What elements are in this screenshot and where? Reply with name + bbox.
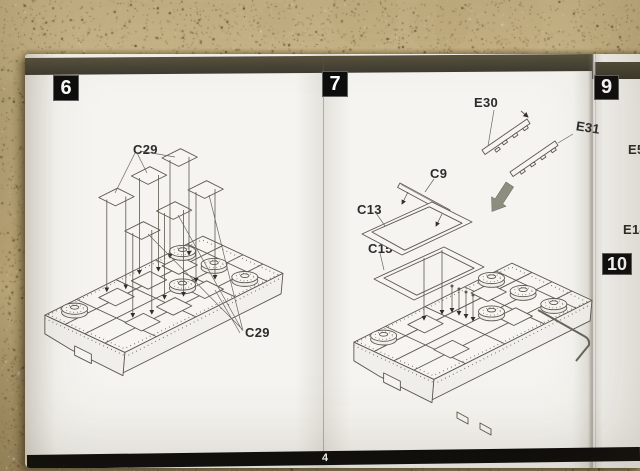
bottom-brackets	[457, 412, 491, 435]
next-page-diagram-fragment	[596, 114, 640, 414]
c13-frame	[362, 202, 472, 255]
step-6-marker: 6	[53, 75, 79, 101]
step-9-marker: 9	[594, 75, 619, 100]
step-7-diagram	[322, 62, 594, 430]
page-footer-band: 4	[27, 447, 640, 468]
c9-beam	[398, 179, 450, 226]
instruction-booklet: 6 7 9 10 C29 C29 E30 E31 C9 C13 C15 E5 E…	[25, 54, 640, 468]
e30-e31-rails	[482, 110, 573, 177]
page-number: 4	[317, 451, 333, 465]
assembly-down-arrow-icon	[492, 182, 514, 212]
step-6-diagram	[35, 133, 325, 383]
tank-hull-drawing	[45, 236, 283, 376]
